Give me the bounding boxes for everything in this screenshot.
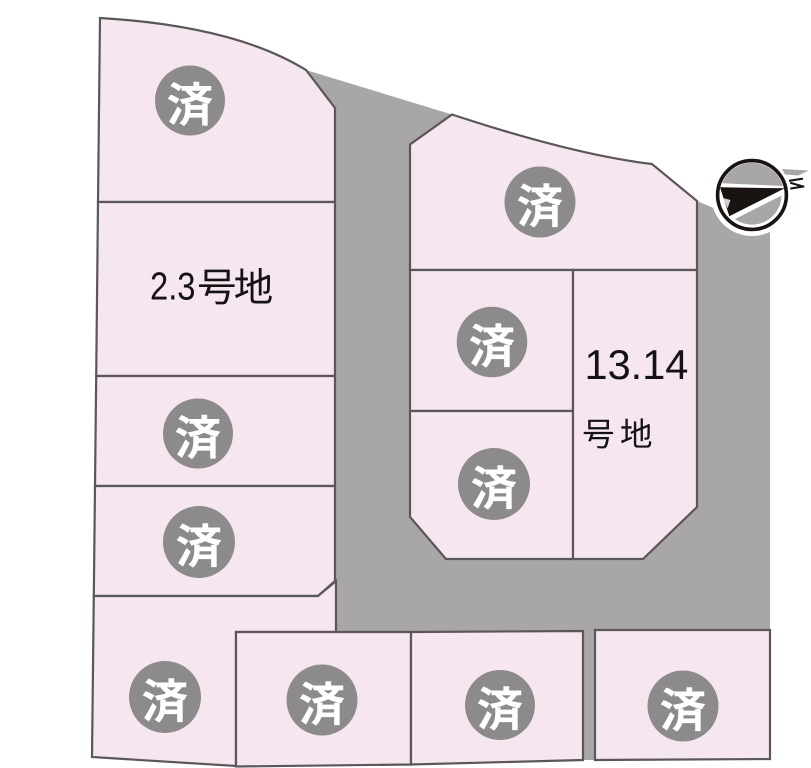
svg-text:2.3: 2.3 — [150, 266, 196, 309]
svg-text:13.14: 13.14 — [585, 341, 689, 388]
